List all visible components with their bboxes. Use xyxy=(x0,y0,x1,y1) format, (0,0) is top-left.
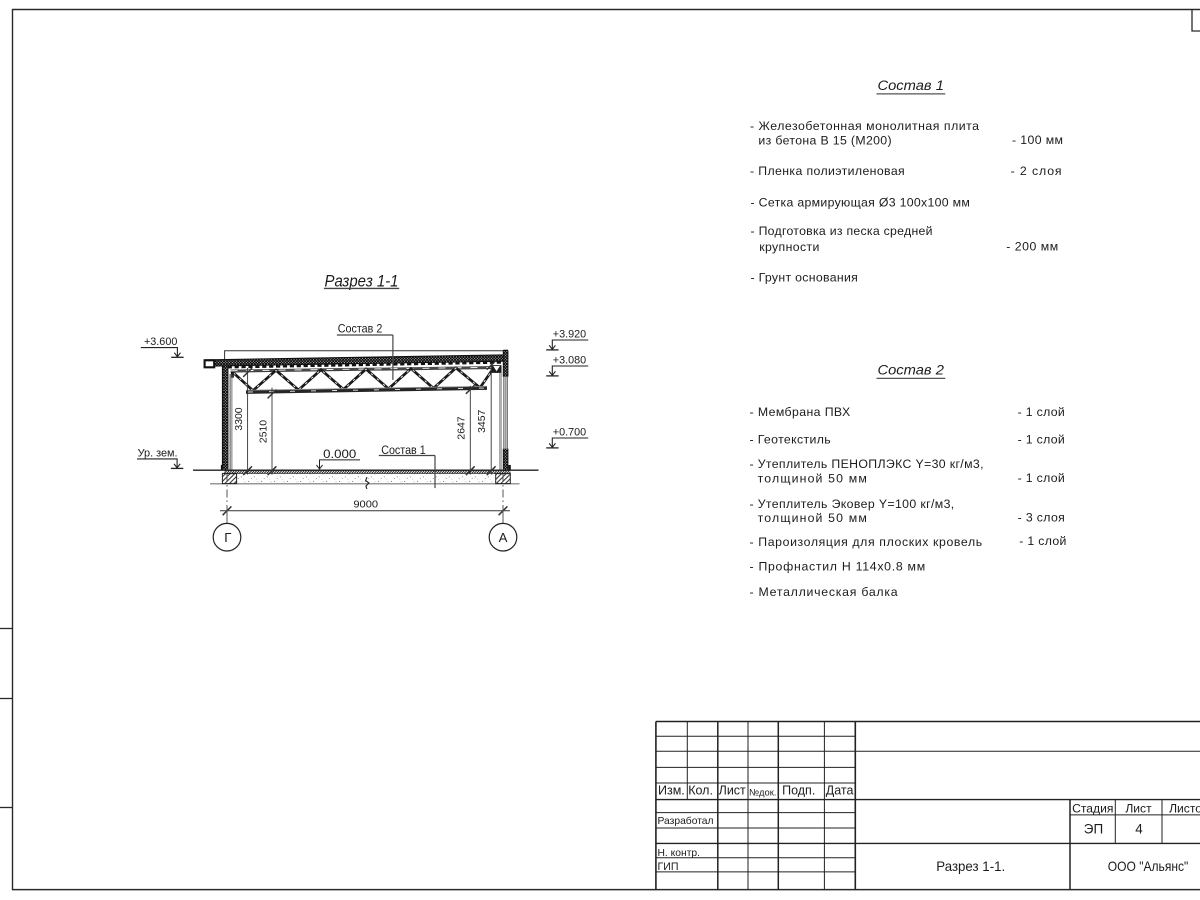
svg-text:Разрез 1-1: Разрез 1-1 xyxy=(325,272,399,290)
svg-text:4: 4 xyxy=(1135,822,1143,837)
svg-text:- Профнастил Н 114х0.8 мм: - Профнастил Н 114х0.8 мм xyxy=(750,559,926,573)
svg-text:толщиной 50 мм: толщиной 50 мм xyxy=(758,471,867,485)
svg-text:Состав 1: Состав 1 xyxy=(878,78,944,94)
svg-text:ООО "Альянс": ООО "Альянс" xyxy=(1108,859,1189,874)
svg-text:2510: 2510 xyxy=(258,420,269,443)
svg-text:- Железобетонная монолитная п: - Железобетонная монолитная плита xyxy=(750,119,979,133)
svg-text:Изм.: Изм. xyxy=(658,784,685,798)
svg-text:2647: 2647 xyxy=(456,416,467,439)
svg-text:- 1 слой: - 1 слой xyxy=(1018,471,1065,485)
svg-text:- 3 слоя: - 3 слоя xyxy=(1018,511,1065,525)
svg-text:- Подготовка из песка средней: - Подготовка из песка средней xyxy=(751,224,933,238)
svg-text:+3.920: +3.920 xyxy=(553,328,586,340)
svg-text:- 1 слой: - 1 слой xyxy=(1019,534,1066,548)
svg-text:+0.700: +0.700 xyxy=(553,426,586,438)
svg-text:№док.: №док. xyxy=(749,786,776,797)
svg-text:ГИП: ГИП xyxy=(658,861,679,873)
svg-text:- 2 слоя: - 2 слоя xyxy=(1011,164,1062,178)
svg-text:Н. контр.: Н. контр. xyxy=(658,848,701,859)
svg-text:- Геотекстиль: - Геотекстиль xyxy=(750,432,831,446)
svg-text:- Грунт основания: - Грунт основания xyxy=(751,270,858,284)
svg-text:3457: 3457 xyxy=(477,410,488,433)
svg-text:крупности: крупности xyxy=(759,240,819,254)
svg-text:+3.080: +3.080 xyxy=(553,355,586,367)
svg-text:- 200 мм: - 200 мм xyxy=(1006,240,1058,254)
svg-text:- Пароизоляция для плоских кро: - Пароизоляция для плоских кровель xyxy=(750,535,983,549)
svg-text:3300: 3300 xyxy=(234,407,245,430)
svg-text:Состав 2: Состав 2 xyxy=(878,363,944,379)
svg-text:- Утеплитель ПЕНОПЛЭКС Y=30 кг: - Утеплитель ПЕНОПЛЭКС Y=30 кг/м3, xyxy=(750,457,984,471)
svg-text:+3.600: +3.600 xyxy=(144,336,177,348)
svg-text:- Утеплитель Эковер Y=100 кг/м: - Утеплитель Эковер Y=100 кг/м3, xyxy=(750,497,955,511)
svg-text:Г: Г xyxy=(224,530,231,545)
svg-text:- Сетка армирующая Ø3 100х100: - Сетка армирующая Ø3 100х100 мм xyxy=(751,195,970,209)
svg-text:толщиной 50 мм: толщиной 50 мм xyxy=(758,511,867,525)
svg-text:Лист: Лист xyxy=(1125,802,1152,816)
svg-text:- Металлическая балка: - Металлическая балка xyxy=(750,585,898,599)
svg-text:ЭП: ЭП xyxy=(1084,822,1103,837)
svg-text:Дата: Дата xyxy=(826,784,854,798)
svg-text:Кол.: Кол. xyxy=(688,784,713,798)
svg-text:- Пленка полиэтиленовая: - Пленка полиэтиленовая xyxy=(750,164,905,178)
svg-text:А: А xyxy=(499,530,508,545)
svg-text:Разрез 1-1.: Разрез 1-1. xyxy=(936,859,1005,874)
svg-text:Подп.: Подп. xyxy=(782,784,815,798)
svg-text:Состав 2: Состав 2 xyxy=(338,321,383,335)
svg-text:Стадия: Стадия xyxy=(1072,802,1113,816)
svg-text:Ур. зем.: Ур. зем. xyxy=(138,447,178,459)
svg-text:9000: 9000 xyxy=(353,500,378,511)
svg-text:из бетона В 15 (М200): из бетона В 15 (М200) xyxy=(758,133,891,147)
svg-text:Листов: Листов xyxy=(1169,802,1200,816)
svg-text:0.000: 0.000 xyxy=(323,447,356,461)
svg-text:- 1 слой: - 1 слой xyxy=(1018,405,1065,419)
svg-text:Лист: Лист xyxy=(719,784,746,798)
svg-text:Разработал: Разработал xyxy=(658,815,714,827)
svg-text:- Мембрана ПВХ: - Мембрана ПВХ xyxy=(750,405,851,419)
svg-text:- 1 слой: - 1 слой xyxy=(1018,432,1065,446)
svg-text:- 100 мм: - 100 мм xyxy=(1012,133,1063,147)
